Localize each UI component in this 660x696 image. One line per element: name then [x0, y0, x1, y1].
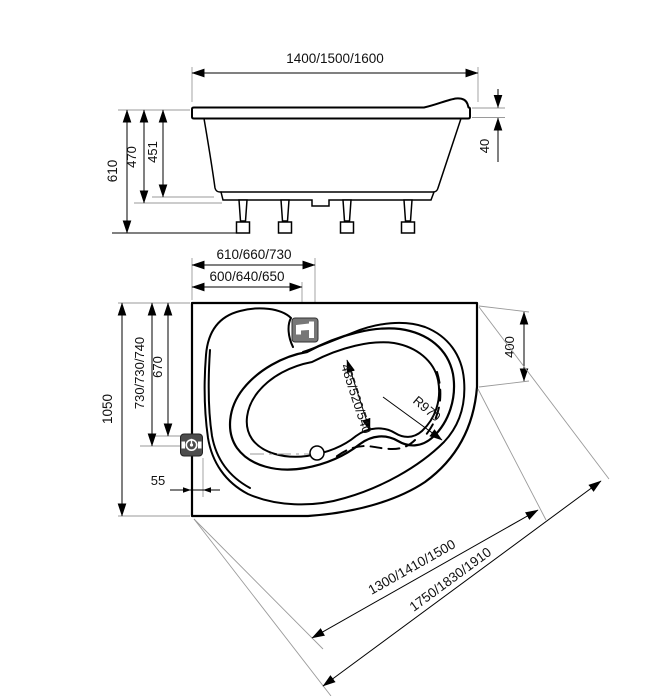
dim-label-overflow-edge-offset: 55	[151, 473, 165, 488]
dim-corner-edge: 400	[479, 306, 529, 387]
side-view: 1400/1500/1600	[105, 51, 505, 233]
dim-label-overflow-depth: 730/730/740	[132, 337, 147, 409]
leg	[279, 200, 292, 233]
dim-label-drain-offset: 610/660/730	[216, 247, 291, 262]
dim-heights: 610 470 451	[105, 110, 222, 233]
bathtub-technical-drawing: 1400/1500/1600	[0, 0, 660, 696]
legs	[237, 200, 415, 233]
faucet-icon	[292, 318, 318, 342]
dim-label-height-shell: 451	[145, 141, 160, 163]
dim-label-well-depth: 670	[150, 356, 165, 378]
dim-label-height-total: 610	[105, 160, 120, 183]
dim-overflow-depth: 730/730/740	[132, 303, 152, 446]
overflow-icon	[181, 434, 203, 456]
dim-label-rim-thickness: 40	[477, 139, 492, 153]
dim-rim-thickness: 40	[472, 89, 505, 162]
plan-view: 610/660/730 600/640/650	[100, 247, 609, 696]
dim-label-height-frame: 470	[124, 146, 139, 168]
dim-label-faucet-offset: 600/640/650	[209, 269, 284, 284]
tub-rim-profile	[192, 98, 470, 118]
leg	[237, 200, 250, 233]
dim-label-overall-width: 1400/1500/1600	[286, 51, 384, 66]
leg	[402, 200, 415, 233]
dim-overall-width: 1400/1500/1600	[192, 51, 478, 102]
support-frame	[221, 192, 434, 206]
tub-body-profile	[204, 119, 461, 193]
leg	[341, 200, 354, 233]
dim-well-depth: 670	[150, 303, 168, 436]
dim-label-depth-total: 1050	[100, 394, 115, 424]
drain-icon	[310, 446, 324, 460]
